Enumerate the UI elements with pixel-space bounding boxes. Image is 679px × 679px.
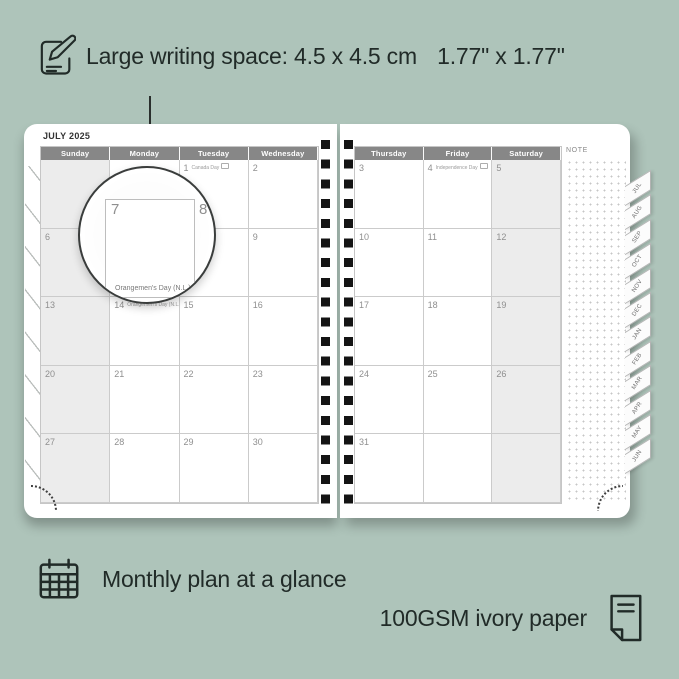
top-annotation-text: Large writing space: 4.5 x 4.5 cm 1.77" … [86,43,565,70]
paper-icon [603,592,645,644]
holiday-flag-badge [480,163,488,169]
day-number: 9 [253,232,258,242]
day-cell: 10 [355,229,424,298]
day-cell: 18 [424,297,493,366]
weekday-header: Tuesday [180,147,249,160]
day-cell: 16 [249,297,318,366]
weekday-header: Monday [110,147,179,160]
weekday-header: Thursday [355,147,424,160]
day-cell: 12 [492,229,561,298]
day-cell: 15 [180,297,249,366]
weekday-header: Sunday [41,147,110,160]
day-number: 2 [253,163,258,173]
day-number: 13 [45,300,55,310]
day-number: 26 [496,369,506,379]
day-cell: 22 [180,366,249,435]
magnified-day-number-7: 7 [111,201,119,218]
day-number: 20 [45,369,55,379]
day-cell: 9 [249,229,318,298]
holiday-label: Canada Day [192,165,220,171]
day-cell: 4Independence Day [424,160,493,229]
day-number: 25 [428,369,438,379]
day-cell: 11 [424,229,493,298]
note-column: NOTE [564,146,628,504]
day-cell: 23 [249,366,318,435]
bottom-left-annotation: Monthly plan at a glance [36,556,347,602]
day-number: 21 [114,369,124,379]
bottom-right-label: 100GSM ivory paper [380,605,587,632]
day-number: 31 [359,437,369,447]
day-cell: 17 [355,297,424,366]
day-number: 11 [428,232,437,242]
weekday-header: Saturday [492,147,561,160]
bottom-right-annotation: 100GSM ivory paper [380,592,645,644]
day-number: 18 [428,300,438,310]
day-cell: 30 [249,434,318,503]
magnified-day-number-8: 8 [199,201,207,218]
day-number: 27 [45,437,55,447]
day-cell: 5 [492,160,561,229]
day-number: 28 [114,437,124,447]
page-edge-hatching [25,166,40,502]
holiday-flag-badge [221,163,229,169]
day-cell: 24 [355,366,424,435]
holiday-label: Independence Day [436,165,478,171]
day-cell: 31 [355,434,424,503]
day-number: 14 [114,300,124,310]
weekday-header: Friday [424,147,493,160]
day-number: 4 [428,163,433,173]
spiral-binding-holes-left [321,140,330,514]
right-month-grid: ThursdayFridaySaturday34Independence Day… [354,146,562,504]
day-cell: 2 [249,160,318,229]
day-cell: 25 [424,366,493,435]
day-number: 3 [359,163,364,173]
day-number: 29 [184,437,194,447]
day-cell: 27 [41,434,110,503]
day-number: 23 [253,369,263,379]
note-label: NOTE [566,147,588,154]
top-annotation-metric: 4.5 x 4.5 cm [294,43,417,69]
day-number: 24 [359,369,369,379]
top-annotation: Large writing space: 4.5 x 4.5 cm 1.77" … [36,30,565,82]
day-number: 17 [359,300,369,310]
weekday-header: Wednesday [249,147,318,160]
day-cell: 21 [110,366,179,435]
day-cell: 20 [41,366,110,435]
day-number: 10 [359,232,369,242]
day-number: 30 [253,437,263,447]
magnifier-circle: 7 8 Orangemen's Day (N.L.) [78,166,216,304]
day-number: 12 [496,232,506,242]
day-number: 1 [184,163,189,173]
notepad-pencil-icon [36,30,76,82]
day-cell: 28 [110,434,179,503]
day-number: 16 [253,300,263,310]
day-cell: 14Orangemen's Day (N.L.) [110,297,179,366]
day-cell [492,434,561,503]
day-number: 19 [496,300,506,310]
day-cell: 19 [492,297,561,366]
product-infographic: Large writing space: 4.5 x 4.5 cm 1.77" … [0,0,679,679]
day-number: 22 [184,369,194,379]
bottom-left-label: Monthly plan at a glance [102,566,347,593]
day-cell [424,434,493,503]
day-cell: 3 [355,160,424,229]
spiral-binding-holes-right [344,140,353,514]
day-cell: 29 [180,434,249,503]
day-cell: 26 [492,366,561,435]
day-number: 6 [45,232,50,242]
magnified-holiday-caption: Orangemen's Day (N.L.) [115,285,191,292]
month-title: JULY 2025 [43,131,90,141]
day-number: 15 [184,300,194,310]
dot-grid [566,159,626,504]
top-annotation-label: Large writing space: [86,43,288,69]
day-cell: 13 [41,297,110,366]
day-number: 5 [496,163,501,173]
calendar-grid-icon [36,556,82,602]
top-annotation-imperial: 1.77" x 1.77" [437,43,565,69]
